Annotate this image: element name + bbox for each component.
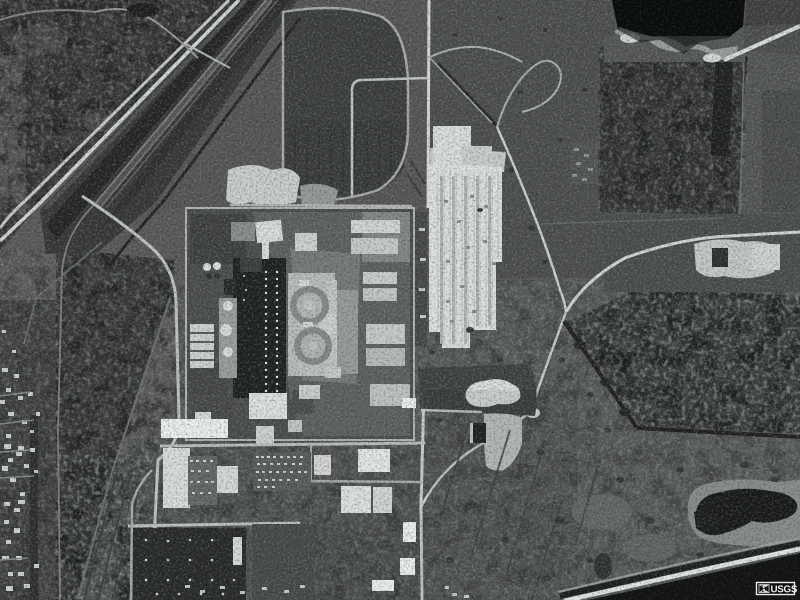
svg-text:USGS: USGS bbox=[770, 584, 797, 595]
